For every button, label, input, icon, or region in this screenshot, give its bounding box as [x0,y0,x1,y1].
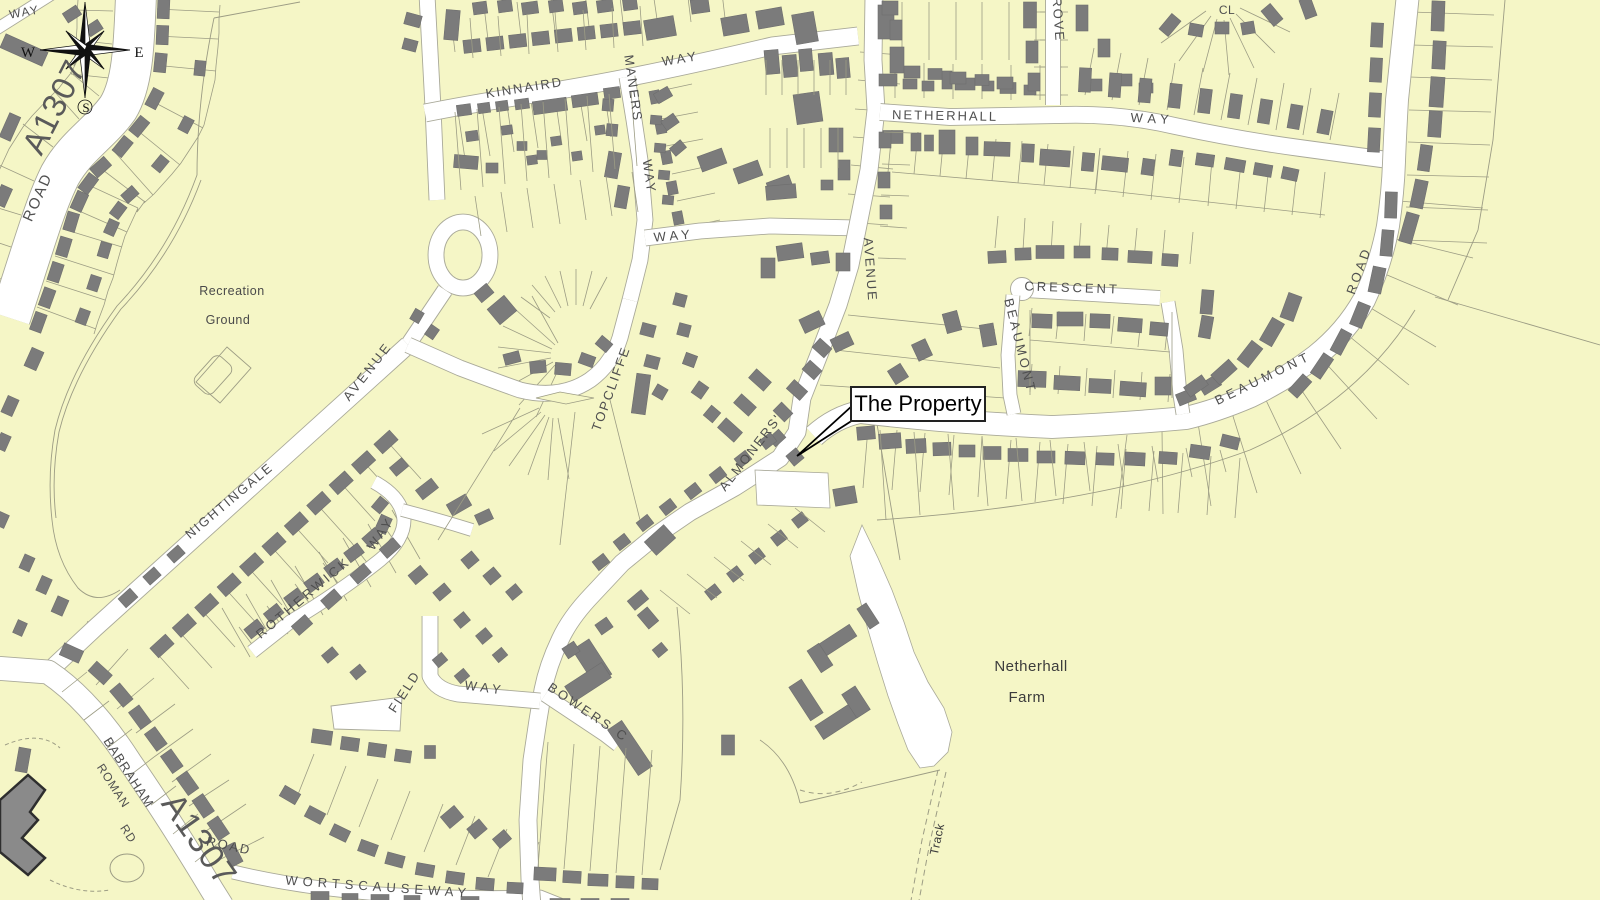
svg-text:ROVE: ROVE [1049,0,1067,43]
svg-text:The Property: The Property [854,391,981,416]
svg-text:Recreation: Recreation [199,284,264,298]
svg-text:Netherhall: Netherhall [994,658,1067,675]
svg-text:WAY: WAY [1130,110,1174,127]
svg-text:E: E [134,45,143,61]
svg-text:Ground: Ground [206,313,251,327]
svg-text:NETHERHALL: NETHERHALL [892,107,998,124]
svg-text:Farm: Farm [1009,689,1046,706]
svg-text:W: W [21,45,36,61]
svg-text:CL: CL [1219,3,1235,17]
